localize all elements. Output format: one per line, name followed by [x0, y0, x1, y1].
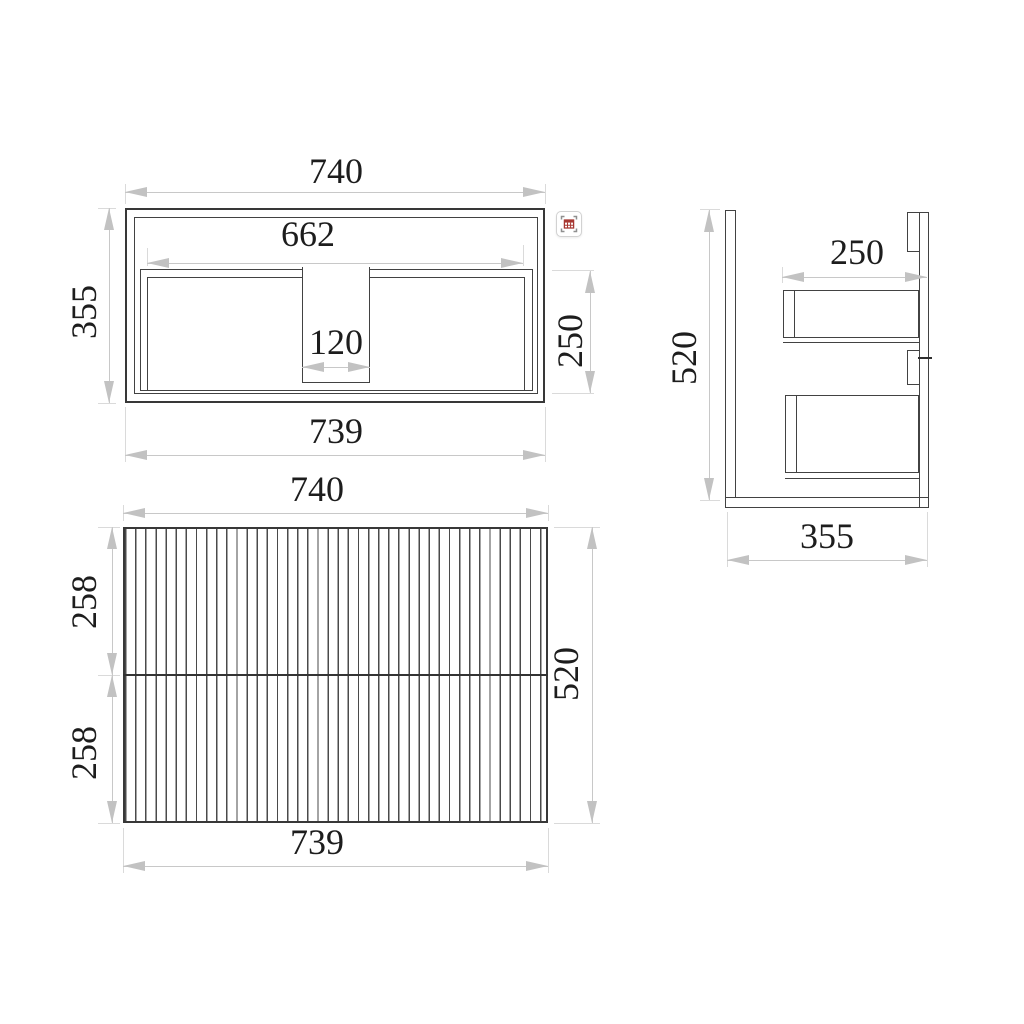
similar-search-button[interactable]	[556, 211, 582, 237]
side-drawer-gap-mark	[918, 357, 932, 359]
plan-dim-662: 662	[248, 216, 368, 252]
front-drawer-divider-line	[123, 674, 548, 676]
side-dim-250: 250	[797, 234, 917, 270]
plan-dim-line-355	[109, 208, 110, 403]
side-lower-drawer-box	[785, 395, 919, 473]
plan-dim-line-662	[147, 263, 523, 264]
plan-dim-740: 740	[276, 153, 396, 189]
front-dim-258-lower: 258	[66, 693, 102, 813]
plan-dim-250: 250	[552, 281, 588, 401]
side-lower-shelf-line	[785, 478, 919, 479]
side-dim-line-355	[727, 560, 927, 561]
plan-dim-line-739	[125, 455, 545, 456]
front-dim-739: 739	[257, 824, 377, 860]
side-upper-shelf-line	[783, 342, 919, 343]
side-bottom-panel	[725, 497, 929, 508]
plan-dim-120: 120	[276, 324, 396, 360]
table-scan-icon	[559, 214, 579, 234]
front-dim-line-520	[592, 527, 593, 823]
side-back-panel	[725, 210, 736, 498]
front-dim-520: 520	[548, 614, 584, 734]
side-dim-520: 520	[666, 298, 702, 418]
plan-dim-355: 355	[66, 252, 102, 372]
front-dim-line-740	[123, 513, 548, 514]
side-upper-drawer-box	[783, 290, 919, 338]
technical-drawing-canvas: 740 662 120 355 250 739	[0, 0, 1024, 1024]
front-dim-258-upper: 258	[66, 542, 102, 662]
front-dim-740: 740	[257, 471, 377, 507]
plan-dim-line-740	[125, 192, 545, 193]
side-lower-drawer-front	[907, 350, 920, 385]
side-dim-355: 355	[767, 518, 887, 554]
plan-dim-739: 739	[276, 413, 396, 449]
side-front-panel	[919, 212, 929, 508]
side-dim-line-520	[709, 210, 710, 500]
front-dim-line-739	[123, 866, 548, 867]
